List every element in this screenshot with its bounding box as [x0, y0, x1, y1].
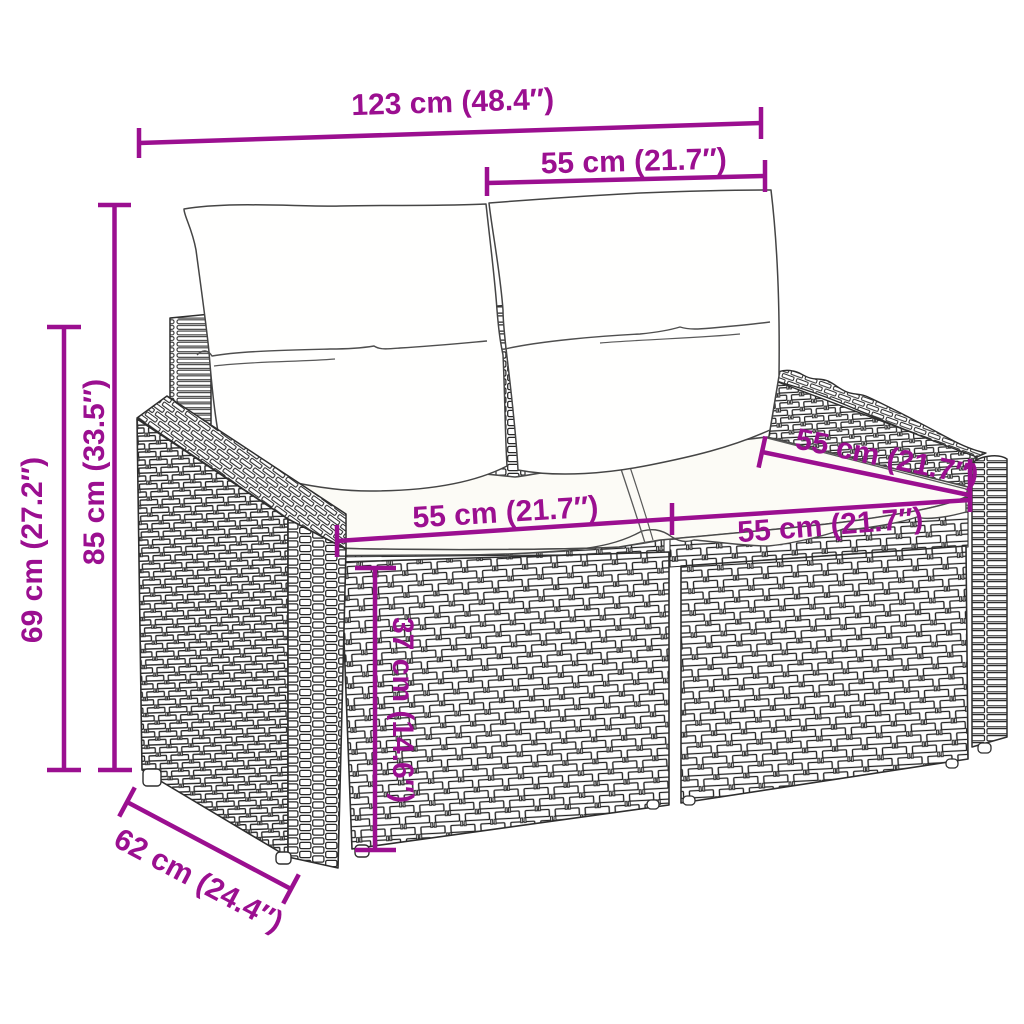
svg-text:69 cm (27.2″): 69 cm (27.2″): [16, 457, 49, 643]
svg-text:55 cm (21.7″): 55 cm (21.7″): [540, 143, 727, 181]
svg-text:85 cm (33.5″): 85 cm (33.5″): [78, 379, 111, 565]
svg-text:123 cm (48.4″): 123 cm (48.4″): [351, 83, 555, 122]
svg-text:37 cm (14.6″): 37 cm (14.6″): [386, 617, 419, 803]
